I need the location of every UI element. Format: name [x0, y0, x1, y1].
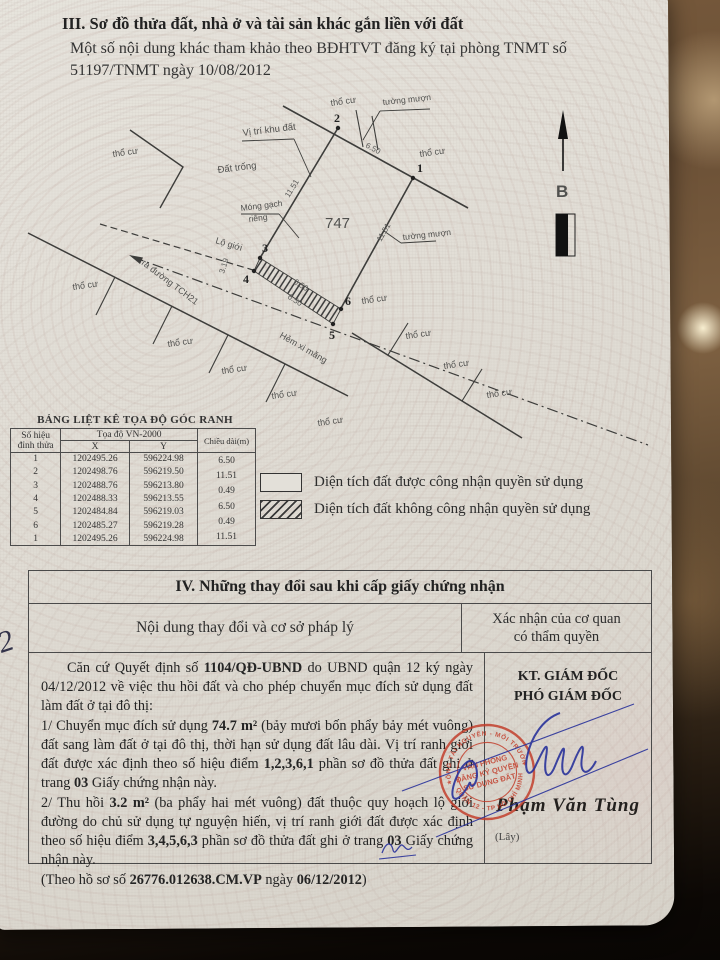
legend-item-not-recognized: Diện tích đất không công nhận quyền sử d…: [260, 500, 590, 519]
label-ra-duong: ra đường TCH21: [140, 258, 201, 307]
label-lo-gioi: Lộ giới: [214, 235, 243, 253]
dim-650-road: 6.50: [364, 141, 382, 157]
paragraph-3: 2/ Thu hồi 3.2 m² (ba phẩy hai mét vuông…: [41, 794, 473, 870]
coord-y-cell: 596224.98: [129, 453, 197, 466]
coord-x-cell: 1202488.33: [61, 492, 130, 505]
coord-y-cell: 596224.98: [129, 532, 197, 545]
coord-point-cell: 3: [11, 479, 61, 492]
coord-point-cell: 4: [11, 492, 61, 505]
dim-319: 3.19: [217, 257, 231, 275]
coord-y-cell: 596219.03: [129, 506, 197, 519]
section4-table: IV. Những thay đổi sau khi cấp giấy chứn…: [28, 570, 652, 864]
map-edge-1-6: [340, 178, 413, 310]
label-tho-cu: thổ cư: [167, 336, 194, 349]
coord-table-body: 11202495.26596224.986.5011.510.496.500.4…: [11, 453, 256, 546]
north-label: B: [556, 182, 568, 201]
paragraph-1: Căn cứ Quyết định số 1104/QĐ-UBND do UBN…: [41, 659, 473, 716]
approval-title-kt: KT. GIÁM ĐỐC: [485, 669, 651, 685]
section3-title: III. Sơ đồ thửa đất, nhà ở và tài sản kh…: [62, 14, 622, 34]
label-tho-cu: thổ cư: [112, 146, 139, 159]
section4-col-left-header: Nội dung thay đổi và cơ sở pháp lý: [29, 604, 462, 652]
length-values-cell: 6.5011.510.496.500.4911.51: [198, 453, 256, 546]
coord-point-cell: 2: [11, 466, 61, 479]
approval-cell: KT. GIÁM ĐỐC PHÓ GIÁM ĐỐC Phạm Văn Tùng …: [485, 653, 651, 863]
length-value: 6.50: [200, 502, 253, 512]
coord-y-cell: 596219.28: [129, 519, 197, 532]
section4-body-row: Căn cứ Quyết định số 1104/QĐ-UBND do UBN…: [29, 653, 651, 863]
label-vi-tri-khu-dat: Vị trí khu đất: [242, 122, 297, 139]
coord-point-cell: 6: [11, 519, 61, 532]
lay-note: (Lây): [495, 831, 519, 843]
col-point: Số hiệu: [21, 431, 50, 441]
coord-x-cell: 1202495.26: [61, 453, 130, 466]
length-value: 6.50: [200, 456, 253, 466]
label-tho-cu: thổ cư: [419, 146, 446, 159]
map-point-4: 4: [243, 272, 249, 286]
map-lower-right-boundary: [352, 333, 522, 438]
coord-point-cell: 1: [11, 453, 61, 466]
coord-y-cell: 596219.50: [129, 466, 197, 479]
parcel-number: 747: [325, 215, 350, 232]
map-hatched-strip: [254, 258, 341, 324]
length-value: 0.49: [200, 517, 253, 527]
coord-point-cell: 5: [11, 506, 61, 519]
legend-label: Diện tích đất được công nhận quyền sử dụ…: [314, 474, 583, 491]
col-coords: Tọa độ VN-2000: [61, 429, 198, 441]
section3-note: Một số nội dung khác tham khảo theo BĐHT…: [70, 38, 650, 81]
coord-x-cell: 1202485.27: [61, 519, 130, 532]
map-lower-left-boundary: [28, 233, 348, 396]
col-x: X: [61, 441, 130, 453]
legend-swatch-hatched: [260, 500, 302, 519]
coordinate-table-section: BẢNG LIỆT KÊ TỌA ĐỘ GÓC RANH Số hiệu đỉn…: [10, 414, 260, 546]
cadastral-map: 2 1 3 4 6 5 747 6.50 11.51 11.51 6.50 6.…: [0, 88, 720, 470]
label-tho-cu: thổ cư: [330, 95, 357, 108]
paragraph-2: 1/ Chuyển mục đích sử dụng 74.7 m² (bảy …: [41, 717, 473, 793]
map-edge-2-3: [260, 128, 338, 258]
label-tho-cu: thổ cư: [443, 358, 470, 371]
label-tho-cu: thổ cư: [361, 293, 388, 306]
signer-name: Phạm Văn Tùng: [485, 795, 651, 817]
note-line-1: Một số nội dung khác tham khảo theo BĐHT…: [70, 38, 650, 60]
dim-1151-right: 11.51: [375, 221, 393, 243]
label-mong-gach: Móng gạch: [240, 198, 283, 213]
label-tuong-muon: tường mượn: [402, 227, 452, 242]
coord-x-cell: 1202498.76: [61, 466, 130, 479]
map-neighbour-boundary: [130, 130, 183, 208]
coord-x-cell: 1202484.84: [61, 506, 130, 519]
label-tho-cu: thổ cư: [271, 388, 298, 401]
legend-swatch-plain: [260, 473, 302, 492]
map-road-line: [283, 106, 468, 208]
section4-title: IV. Những thay đổi sau khi cấp giấy chứn…: [29, 571, 651, 604]
north-arrow-icon: [558, 110, 568, 139]
dim-1151-left: 11.51: [283, 177, 301, 199]
length-value: 11.51: [200, 532, 253, 542]
map-point-5: 5: [329, 328, 335, 342]
coord-y-cell: 596213.80: [129, 479, 197, 492]
coordinate-table-title: BẢNG LIỆT KÊ TỌA ĐỘ GÓC RANH: [10, 414, 260, 426]
approval-title-pho: PHÓ GIÁM ĐỐC: [485, 689, 651, 705]
label-hem-xi-mang: Hẻm xi măng: [278, 330, 329, 365]
coord-x-cell: 1202488.76: [61, 479, 130, 492]
label-tho-cu: thổ cư: [486, 387, 513, 400]
length-value: 0.49: [200, 486, 253, 496]
map-point-1: 1: [417, 161, 423, 175]
map-point-6: 6: [345, 294, 351, 308]
label-tuong-muon: tường mượn: [382, 92, 432, 107]
label-tho-cu: thổ cư: [72, 279, 99, 292]
section4-header-row: Nội dung thay đổi và cơ sở pháp lý Xác n…: [29, 604, 651, 653]
amendment-text: Căn cứ Quyết định số 1104/QĐ-UBND do UBN…: [29, 653, 485, 863]
col-y: Y: [129, 441, 197, 453]
coordinate-table: Số hiệu đỉnh thửa Tọa độ VN-2000 Chiều d…: [10, 428, 256, 546]
legend-label: Diện tích đất không công nhận quyền sử d…: [314, 501, 590, 518]
section4-col-right-header: Xác nhận của cơ quan có thẩm quyền: [462, 604, 651, 652]
label-tho-cu: thổ cư: [405, 328, 432, 341]
legend-item-recognized: Diện tích đất được công nhận quyền sử dụ…: [260, 473, 590, 492]
label-mong-gach-2: riêng: [248, 212, 268, 224]
legend: Diện tích đất được công nhận quyền sử dụ…: [260, 473, 590, 527]
label-tho-cu: thổ cư: [317, 415, 344, 428]
coord-point-cell: 1: [11, 532, 61, 545]
map-point-3: 3: [262, 241, 268, 255]
col-length: Chiều dài(m): [198, 429, 256, 453]
note-line-2: 51197/TNMT ngày 10/08/2012: [70, 60, 650, 82]
map-point-2: 2: [334, 111, 340, 125]
coord-x-cell: 1202495.26: [61, 532, 130, 545]
label-tho-cu: thổ cư: [221, 363, 248, 376]
coord-y-cell: 596213.55: [129, 492, 197, 505]
length-value: 11.51: [200, 471, 253, 481]
label-dat-trong: Đất trống: [217, 160, 257, 176]
paragraph-4: (Theo hồ sơ số 26776.012638.CM.VP ngày 0…: [41, 871, 473, 890]
